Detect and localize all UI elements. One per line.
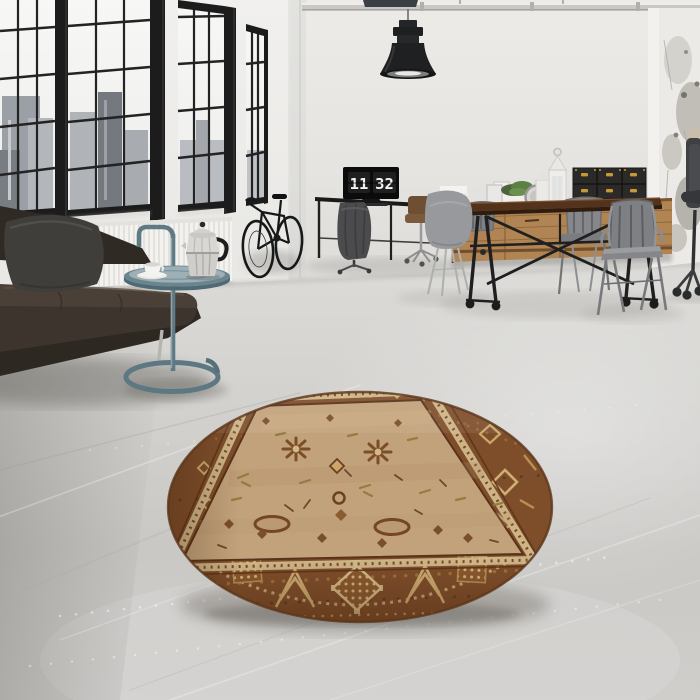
loft-photo: 11 32 <box>0 0 700 700</box>
saddle <box>272 194 287 199</box>
scene-svg: 11 32 <box>0 0 700 700</box>
clock-minutes: 32 <box>375 175 394 193</box>
factory-windows <box>0 0 268 224</box>
duct-elbow <box>363 0 418 7</box>
black-storage-boxes <box>573 168 646 199</box>
clock-hours: 11 <box>350 175 369 193</box>
moka-knob <box>200 222 206 228</box>
